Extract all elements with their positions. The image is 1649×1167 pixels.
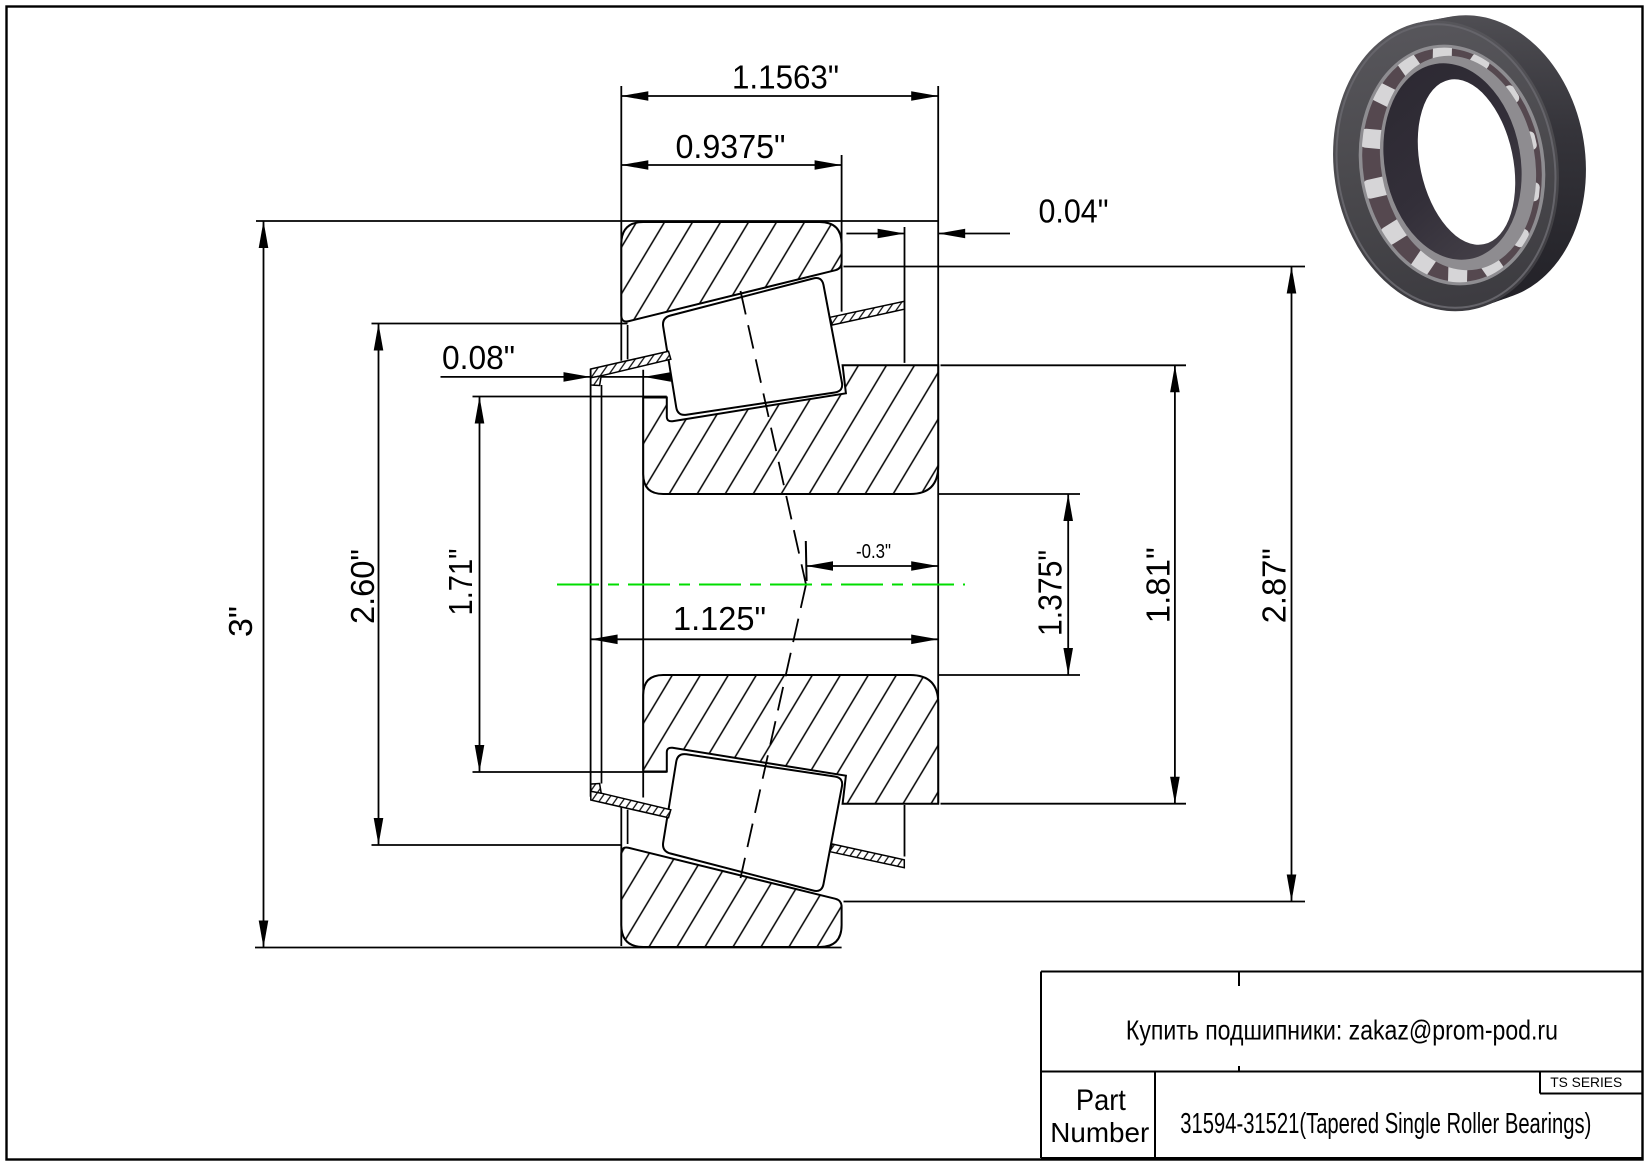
- svg-text:Number: Number: [1050, 1116, 1149, 1148]
- svg-text:1.71": 1.71": [442, 549, 479, 616]
- svg-text:1.125": 1.125": [673, 600, 766, 637]
- svg-text:2.87": 2.87": [1256, 548, 1293, 623]
- svg-text:1.375": 1.375": [1031, 550, 1068, 636]
- svg-text:0.04": 0.04": [1039, 193, 1109, 230]
- svg-text:2.60": 2.60": [344, 549, 381, 624]
- svg-text:1.81": 1.81": [1140, 547, 1177, 623]
- svg-text:3": 3": [222, 606, 259, 637]
- svg-text:Part: Part: [1076, 1084, 1126, 1117]
- svg-text:1.1563": 1.1563": [732, 59, 839, 96]
- svg-text:0.08": 0.08": [442, 339, 515, 376]
- svg-text:-0.3": -0.3": [856, 541, 891, 563]
- svg-text:Купить подшипники: zakaz@prom-: Купить подшипники: zakaz@prom-pod.ru: [1126, 1014, 1558, 1045]
- svg-text:0.9375": 0.9375": [676, 128, 786, 165]
- svg-text:31594-31521(Tapered Single Rol: 31594-31521(Tapered Single Roller Bearin…: [1180, 1108, 1591, 1140]
- svg-text:TS SERIES: TS SERIES: [1550, 1074, 1622, 1090]
